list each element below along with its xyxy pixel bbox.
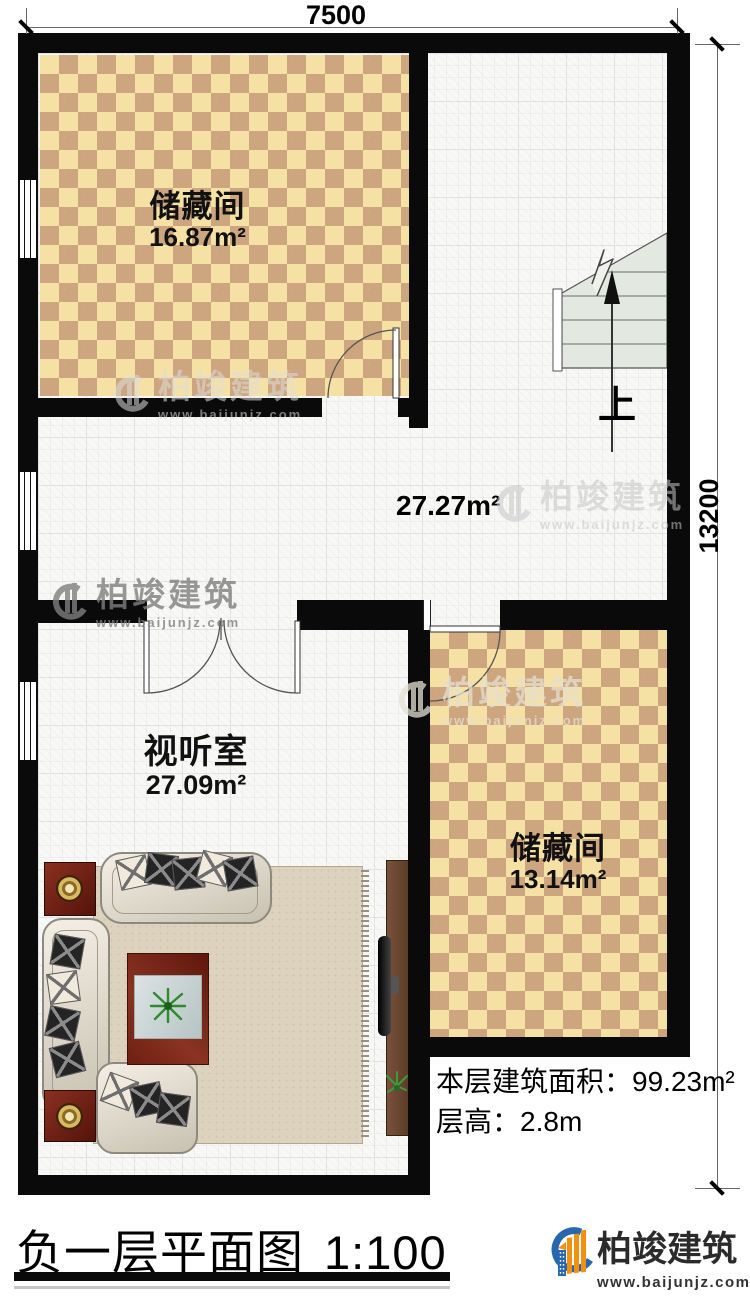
stairs-up-label: 上 bbox=[598, 374, 636, 429]
brand-website: www.baijunjz.com bbox=[597, 1274, 750, 1291]
room-area: 16.87m² bbox=[149, 223, 246, 251]
floor-summary: 本层建筑面积：99.23m² 层高：2.8m bbox=[436, 1062, 735, 1142]
room-area: 13.14m² bbox=[510, 865, 607, 893]
room-label-storage1: 储藏间 16.87m² bbox=[115, 190, 280, 252]
dimension-right-value: 13200 bbox=[694, 460, 725, 572]
floor-height-line: 层高：2.8m bbox=[436, 1102, 735, 1142]
brand-text: 柏竣建筑 www.baijunjz.com bbox=[597, 1232, 750, 1291]
room-area: 27.09m² bbox=[146, 771, 247, 800]
room-label-storage2: 储藏间 13.14m² bbox=[472, 832, 644, 894]
room-name: 视听室 bbox=[144, 734, 249, 771]
title-underline-thin bbox=[14, 1286, 450, 1289]
room-label-av: 视听室 27.09m² bbox=[112, 734, 280, 800]
room-label-hall: 27.27m² bbox=[396, 490, 500, 522]
dimension-top-line bbox=[26, 27, 677, 28]
room-area: 27.27m² bbox=[396, 490, 500, 521]
floor-height-value: 2.8m bbox=[520, 1106, 582, 1137]
brand-logo-icon bbox=[547, 1222, 593, 1292]
title-underline-bold bbox=[14, 1272, 450, 1281]
dimension-right-line bbox=[717, 45, 718, 1188]
room-name: 储藏间 bbox=[150, 190, 246, 223]
floor-area-value: 99.23m² bbox=[632, 1066, 735, 1097]
floor-plan-page: 储藏间 16.87m² 27.27m² 视听室 27.09m² 储藏间 13.1… bbox=[0, 0, 750, 1297]
brand-name: 柏竣建筑 bbox=[597, 1232, 750, 1267]
room-name: 储藏间 bbox=[510, 832, 606, 865]
floor-height-label: 层高： bbox=[436, 1106, 520, 1137]
floor-area-label: 本层建筑面积： bbox=[436, 1066, 632, 1097]
floor-area-line: 本层建筑面积：99.23m² bbox=[436, 1062, 735, 1102]
